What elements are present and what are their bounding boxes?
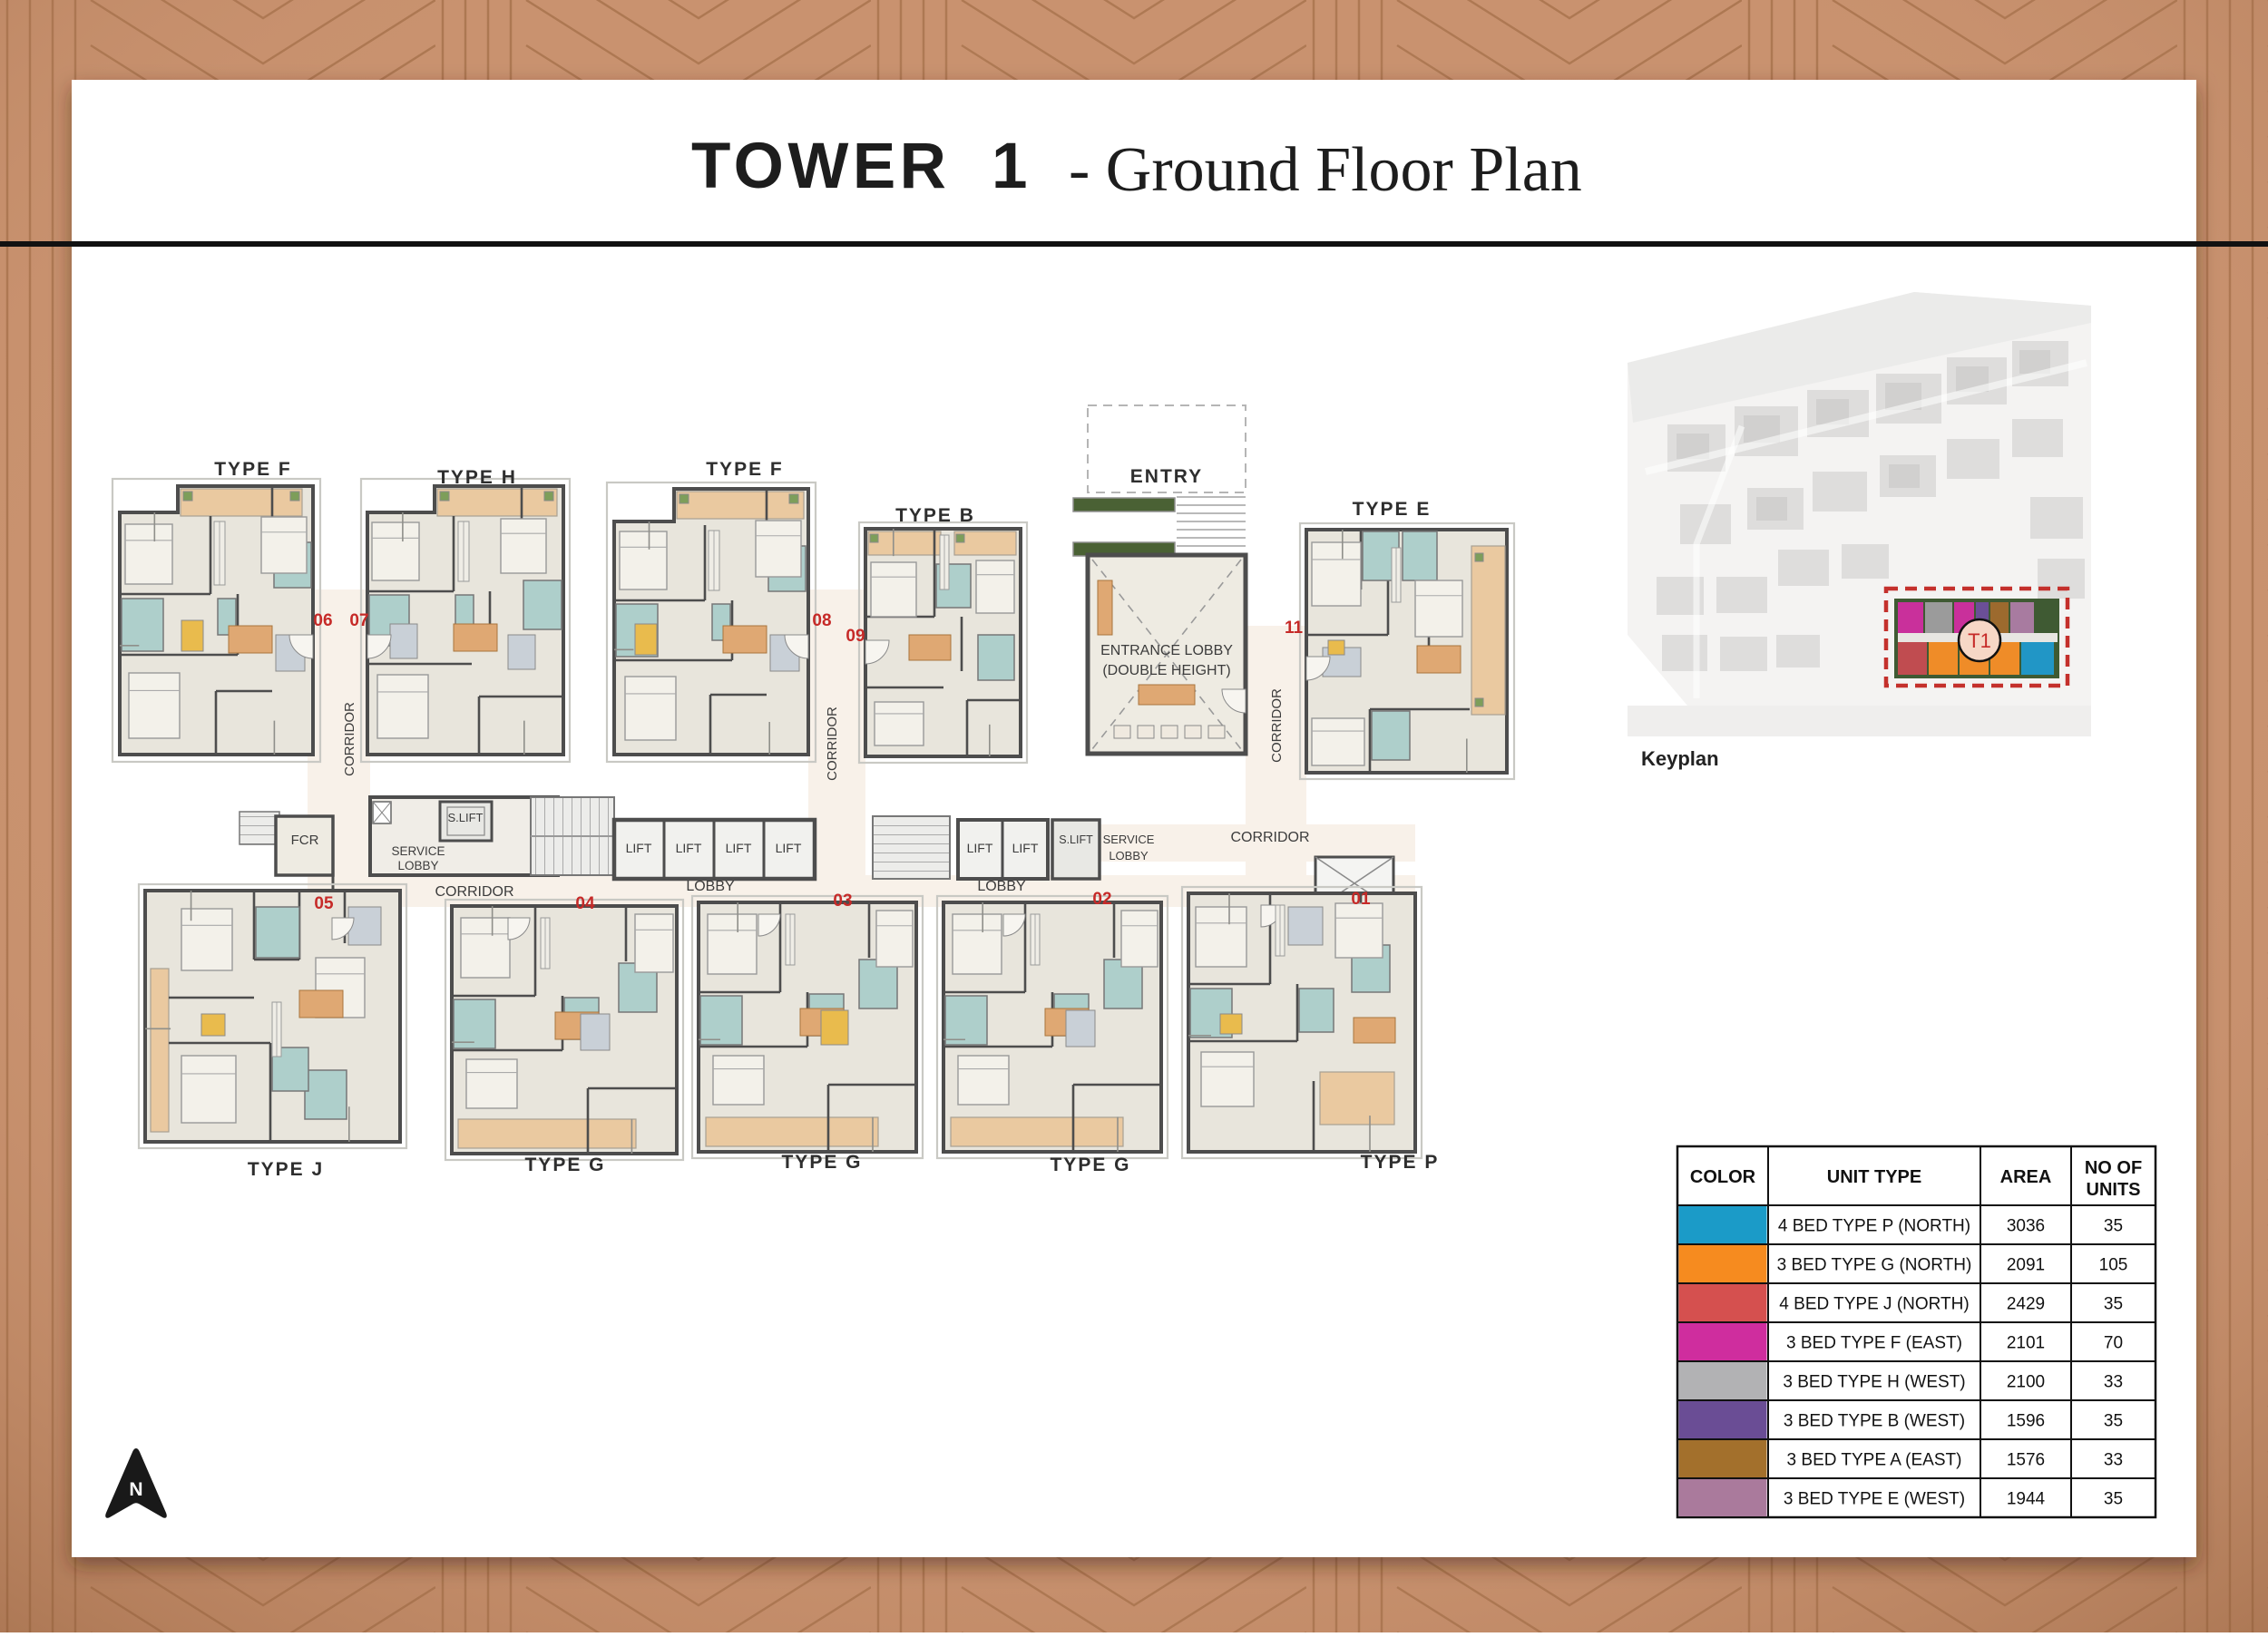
- svg-text:N: N: [129, 1479, 142, 1500]
- svg-text:35: 35: [2104, 1217, 2123, 1236]
- svg-text:11: 11: [1285, 619, 1304, 638]
- svg-text:Keyplan: Keyplan: [1641, 747, 1719, 770]
- svg-text:TYPE G: TYPE G: [524, 1155, 605, 1175]
- svg-text:TYPE P: TYPE P: [1361, 1152, 1440, 1173]
- svg-text:TYPE F: TYPE F: [706, 459, 784, 480]
- svg-text:4 BED TYPE P (NORTH): 4 BED TYPE P (NORTH): [1778, 1217, 1970, 1236]
- svg-text:FCR: FCR: [291, 833, 319, 848]
- svg-text:105: 105: [2099, 1256, 2128, 1275]
- svg-text:3 BED TYPE H (WEST): 3 BED TYPE H (WEST): [1783, 1373, 1965, 1392]
- svg-text:- Ground Floor Plan: - Ground Floor Plan: [1069, 135, 1582, 205]
- svg-text:LOBBY: LOBBY: [1109, 849, 1149, 862]
- svg-text:02: 02: [1092, 890, 1111, 909]
- svg-text:1: 1: [992, 131, 1028, 202]
- svg-text:(DOUBLE HEIGHT): (DOUBLE HEIGHT): [1102, 663, 1230, 678]
- svg-text:01: 01: [1351, 890, 1371, 909]
- svg-text:LOBBY: LOBBY: [397, 859, 438, 872]
- svg-text:LIFT: LIFT: [1012, 841, 1039, 855]
- svg-text:UNIT TYPE: UNIT TYPE: [1827, 1167, 1921, 1187]
- svg-text:TYPE E: TYPE E: [1353, 499, 1432, 520]
- svg-text:2091: 2091: [2007, 1256, 2045, 1275]
- svg-text:2100: 2100: [2007, 1373, 2045, 1392]
- svg-text:LIFT: LIFT: [776, 841, 802, 855]
- svg-text:1944: 1944: [2007, 1490, 2046, 1509]
- svg-text:1596: 1596: [2007, 1412, 2045, 1431]
- svg-text:LIFT: LIFT: [967, 841, 993, 855]
- svg-text:T1: T1: [1968, 629, 1991, 652]
- svg-text:S.LIFT: S.LIFT: [1059, 833, 1093, 846]
- svg-text:S.LIFT: S.LIFT: [447, 811, 483, 824]
- svg-text:4 BED TYPE J (NORTH): 4 BED TYPE J (NORTH): [1779, 1295, 1969, 1314]
- svg-text:SERVICE: SERVICE: [391, 844, 445, 858]
- svg-text:UNITS: UNITS: [2087, 1180, 2141, 1200]
- svg-text:06: 06: [313, 611, 332, 630]
- svg-text:2429: 2429: [2007, 1295, 2045, 1314]
- svg-text:1576: 1576: [2007, 1451, 2045, 1470]
- svg-text:LIFT: LIFT: [726, 841, 752, 855]
- svg-text:TYPE H: TYPE H: [437, 467, 517, 488]
- svg-text:33: 33: [2104, 1373, 2123, 1392]
- svg-text:LOBBY: LOBBY: [977, 879, 1026, 894]
- svg-text:LIFT: LIFT: [626, 841, 652, 855]
- svg-text:TYPE B: TYPE B: [895, 505, 975, 526]
- svg-text:CORRIDOR: CORRIDOR: [1269, 688, 1285, 763]
- svg-text:AREA: AREA: [2000, 1167, 2052, 1187]
- svg-text:ENTRANCE LOBBY: ENTRANCE LOBBY: [1100, 643, 1233, 658]
- svg-text:33: 33: [2104, 1451, 2123, 1470]
- svg-text:09: 09: [846, 627, 865, 646]
- svg-text:35: 35: [2104, 1412, 2123, 1431]
- svg-text:CORRIDOR: CORRIDOR: [1230, 830, 1309, 845]
- svg-text:CORRIDOR: CORRIDOR: [435, 884, 513, 900]
- svg-text:TYPE G: TYPE G: [1050, 1155, 1130, 1175]
- svg-text:ENTRY: ENTRY: [1130, 466, 1203, 487]
- svg-text:35: 35: [2104, 1295, 2123, 1314]
- svg-text:LOBBY: LOBBY: [686, 879, 735, 894]
- svg-text:CORRIDOR: CORRIDOR: [825, 706, 840, 781]
- svg-text:3036: 3036: [2007, 1217, 2045, 1236]
- svg-text:COLOR: COLOR: [1690, 1167, 1756, 1187]
- svg-text:3 BED TYPE F (EAST): 3 BED TYPE F (EAST): [1786, 1334, 1962, 1353]
- svg-text:TYPE G: TYPE G: [781, 1152, 862, 1173]
- svg-text:3 BED TYPE E (WEST): 3 BED TYPE E (WEST): [1784, 1490, 1965, 1509]
- svg-text:SERVICE: SERVICE: [1103, 833, 1155, 846]
- svg-text:3 BED TYPE A (EAST): 3 BED TYPE A (EAST): [1787, 1451, 1962, 1470]
- svg-text:TYPE F: TYPE F: [214, 459, 292, 480]
- svg-text:04: 04: [575, 894, 595, 913]
- svg-text:TYPE J: TYPE J: [248, 1159, 324, 1180]
- svg-text:CORRIDOR: CORRIDOR: [342, 702, 357, 776]
- svg-text:3 BED TYPE B (WEST): 3 BED TYPE B (WEST): [1784, 1412, 1965, 1431]
- svg-text:NO OF: NO OF: [2085, 1158, 2142, 1178]
- svg-text:70: 70: [2104, 1334, 2123, 1353]
- svg-text:3 BED TYPE G (NORTH): 3 BED TYPE G (NORTH): [1777, 1256, 1972, 1275]
- svg-text:TOWER: TOWER: [691, 131, 950, 202]
- svg-text:08: 08: [812, 611, 831, 630]
- svg-text:2101: 2101: [2007, 1334, 2045, 1353]
- svg-text:03: 03: [833, 892, 852, 911]
- svg-text:35: 35: [2104, 1490, 2123, 1509]
- svg-text:07: 07: [349, 611, 368, 630]
- svg-text:LIFT: LIFT: [676, 841, 702, 855]
- svg-text:05: 05: [314, 894, 334, 913]
